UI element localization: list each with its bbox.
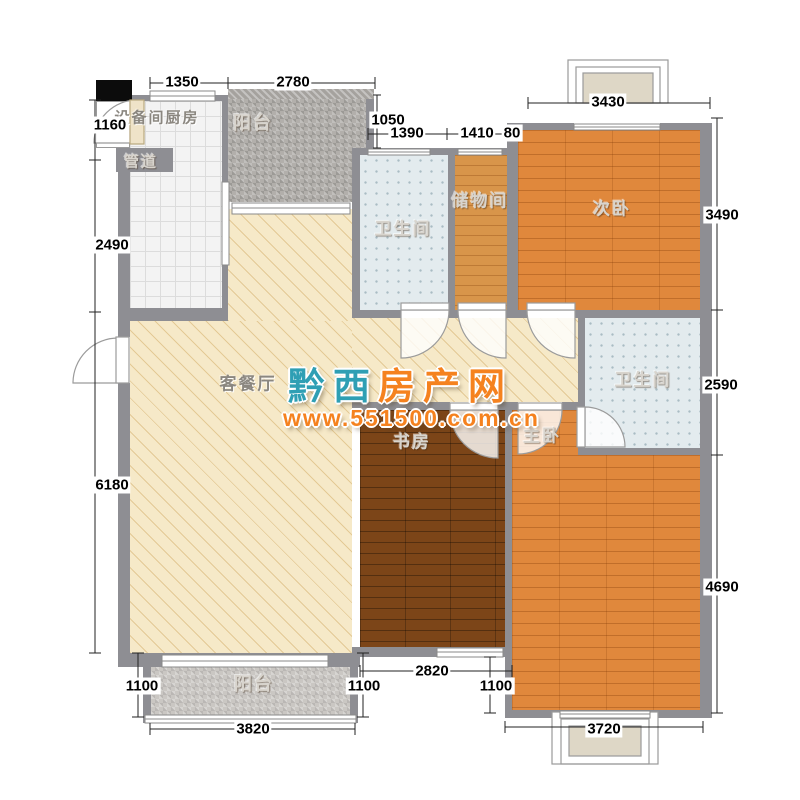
door-storage [458,303,506,358]
opening-kitchen-living [222,182,229,265]
dim-left-living: 6180 [93,477,130,494]
floor-plan: 设备间厨房 管道 阳台 卫生间 储物间 次卧 客餐厅 卫生间 书房 主卧 阳台 … [0,0,800,800]
watermark-char: 黔 [288,356,325,410]
dim-bottom-balcony-height: 1100 [124,678,161,695]
window-master-bay-opening [560,711,650,718]
label-bathroom-mid: 卫生间 [375,215,432,240]
dim-study-width: 2820 [413,663,450,680]
door-entrance [73,337,129,383]
dim-right-bedroom2: 3490 [703,207,740,224]
watermark-char: 产 [423,356,460,410]
window-bedroom2-bay-opening [574,124,660,130]
watermark-char: 西 [333,356,370,410]
watermark-char: 房 [378,356,415,410]
door-bathroom-master [577,407,625,447]
door-bedroom-secondary [527,303,575,358]
label-bedroom-secondary: 次卧 [593,195,631,220]
dim-left-kitchen: 2490 [93,237,130,254]
label-balcony-bottom: 阳台 [234,670,274,696]
dim-master-width: 3720 [585,721,622,738]
dim-right-bath: 2590 [702,377,739,394]
label-duct: 管道 [124,151,158,172]
dim-top-bedroom-width: 3430 [589,94,626,111]
window-study-bottom [437,648,503,657]
dim-left-top: 1160 [92,117,129,134]
dim-bottom-mid-height: 1100 [346,678,383,695]
dim-wall-gap-80: 80 [502,125,523,142]
label-bathroom-master: 卫生间 [615,366,672,391]
window-kitchen-top [150,91,215,101]
watermark-title: 黔 西 房 产 网 [288,356,505,410]
dim-storage-width: 1410 [458,125,495,142]
dim-bath-mid-width: 1390 [388,125,425,142]
label-storage: 储物间 [452,187,509,212]
watermark-url: www.551500.com.cn [283,405,540,432]
watermark-char: 网 [468,356,505,410]
window-living-balcony-door [162,655,328,667]
dim-bottom-right-height: 1100 [478,678,515,695]
dim-top-balcony-width: 2780 [274,74,311,91]
label-living-dining: 客餐厅 [220,370,277,395]
label-balcony-top: 阳台 [233,109,273,135]
dim-top-kitchen-width: 1350 [163,74,200,91]
door-bathroom-mid [401,303,449,358]
window-bathroom-mid [368,149,430,155]
dim-right-master: 4690 [703,579,740,596]
window-balcony-living [232,203,350,214]
dim-bottom-balcony-width: 3820 [234,721,271,738]
window-storage [458,149,502,155]
